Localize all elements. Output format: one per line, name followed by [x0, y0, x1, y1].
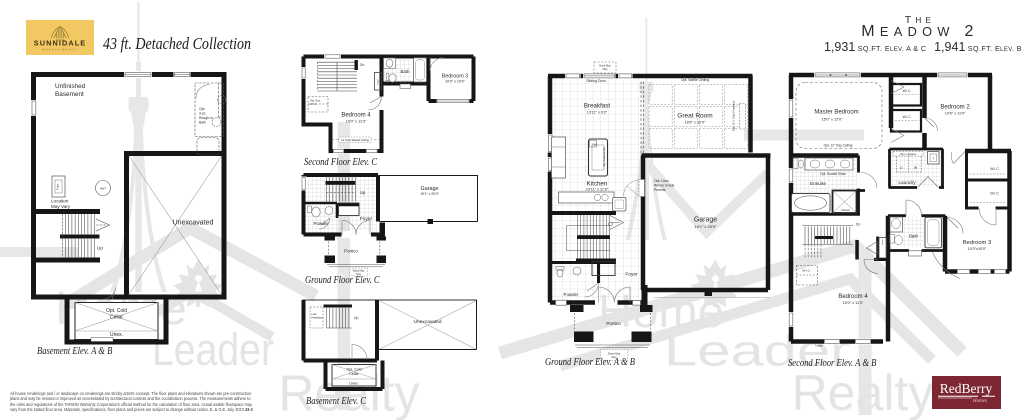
svg-text:Steps May: Steps May: [608, 352, 621, 356]
svg-text:Realty: Realty: [792, 365, 934, 420]
svg-text:Permits: Permits: [654, 188, 666, 192]
svg-text:Opt. Double Sinks: Opt. Double Sinks: [820, 172, 846, 176]
svg-text:Linen: Linen: [378, 78, 380, 84]
svg-text:RedBerry: RedBerry: [940, 381, 993, 396]
svg-text:Laundry: Laundry: [898, 180, 916, 186]
svg-text:Unexcavated: Unexcavated: [414, 319, 442, 325]
svg-text:Opt. O.V. Gas Fireplace: Opt. O.V. Gas Fireplace: [732, 100, 736, 131]
svg-text:Shower: Shower: [841, 208, 850, 212]
svg-text:Opt. Breakfast Bar: Opt. Breakfast Bar: [603, 147, 606, 167]
svg-text:SUNNIDALE: SUNNIDALE: [34, 39, 86, 48]
svg-text:Breakfast: Breakfast: [584, 103, 610, 110]
svg-text:13'11" x 11'6": 13'11" x 11'6": [586, 188, 609, 192]
svg-text:Powder: Powder: [314, 221, 329, 226]
svg-text:Ensuite: Ensuite: [810, 181, 826, 187]
svg-text:W.I.C.: W.I.C.: [990, 167, 999, 171]
svg-text:Dn: Dn: [360, 63, 364, 67]
svg-text:Up: Up: [360, 190, 366, 195]
svg-text:T: T: [932, 157, 934, 161]
svg-text:Opt. Cold: Opt. Cold: [106, 308, 127, 314]
svg-text:Deck May: Deck May: [599, 64, 611, 68]
svg-text:Unexcavated: Unexcavated: [173, 220, 214, 227]
svg-text:W.I.C.: W.I.C.: [903, 89, 912, 93]
svg-text:Headroom: Headroom: [312, 315, 324, 319]
svg-text:Bath: Bath: [401, 69, 411, 74]
svg-text:13'11" x 9'2": 13'11" x 9'2": [587, 111, 608, 115]
svg-text:Bath: Bath: [909, 234, 919, 239]
svg-text:Great Room: Great Room: [677, 113, 712, 120]
svg-text:Opt. Uppers: Opt. Uppers: [900, 152, 917, 156]
svg-text:Unex.: Unex.: [110, 332, 123, 338]
svg-text:HWT: HWT: [100, 187, 106, 191]
svg-text:Bedroom 4: Bedroom 4: [838, 294, 868, 300]
svg-text:Bath: Bath: [199, 121, 206, 125]
svg-text:Furn.: Furn.: [56, 183, 60, 190]
svg-text:Homes: Homes: [972, 399, 987, 404]
svg-text:Bedroom 4: Bedroom 4: [341, 113, 371, 119]
svg-text:10'6" x 11'0": 10'6" x 11'0": [945, 112, 966, 116]
svg-text:Master Bedroom: Master Bedroom: [814, 110, 858, 116]
svg-text:WASAGA BEACH: WASAGA BEACH: [42, 48, 77, 52]
svg-text:Portico: Portico: [344, 249, 358, 254]
svg-text:Powder: Powder: [564, 292, 579, 297]
svg-text:Dn: Dn: [856, 223, 860, 227]
svg-text:Cellar: Cellar: [110, 315, 123, 321]
svg-text:14' High Raised Ceiling: 14' High Raised Ceiling: [341, 138, 369, 142]
svg-text:10'0"x10'0": 10'0"x10'0": [968, 247, 987, 251]
svg-text:Leader: Leader: [152, 324, 274, 375]
svg-text:Kitchen: Kitchen: [587, 181, 608, 188]
svg-text:Opt. 12' Tray Ceiling: Opt. 12' Tray Ceiling: [824, 143, 853, 147]
svg-text:Up: Up: [97, 246, 103, 251]
svg-text:10'0" x 11'3": 10'0" x 11'3": [843, 301, 864, 305]
svg-text:W.I.C.: W.I.C.: [802, 269, 810, 273]
svg-text:19'1" x 20'0": 19'1" x 20'0": [420, 192, 439, 196]
svg-text:Rough-in: Rough-in: [199, 116, 213, 120]
svg-text:W.I.C.: W.I.C.: [990, 192, 999, 196]
svg-text:Sliding Door: Sliding Door: [586, 79, 606, 83]
svg-text:10'0" x 11'3": 10'0" x 11'3": [346, 120, 367, 124]
svg-text:May Vary: May Vary: [51, 204, 71, 209]
svg-text:Ledge: Ledge: [815, 344, 823, 348]
svg-text:Portico: Portico: [606, 321, 621, 326]
svg-text:19'1" x 20'0": 19'1" x 20'0": [695, 224, 718, 229]
svg-text:15'0" x 12'0": 15'0" x 12'0": [822, 118, 843, 122]
svg-text:Unex.: Unex.: [349, 382, 358, 386]
svg-text:Vary: Vary: [602, 67, 608, 71]
svg-text:Opt. Door: Opt. Door: [654, 179, 670, 183]
svg-text:Opt. Waffle Ceiling: Opt. Waffle Ceiling: [681, 78, 709, 82]
svg-text:Cellar: Cellar: [349, 372, 359, 376]
svg-text:Bedroom 3: Bedroom 3: [963, 240, 991, 246]
svg-text:Opt.: Opt.: [199, 107, 205, 111]
svg-text:16'5" x 12'0": 16'5" x 12'0": [685, 121, 706, 125]
svg-text:Unfinished: Unfinished: [55, 83, 86, 90]
svg-text:Opt. Cold: Opt. Cold: [346, 368, 361, 372]
svg-text:3-pc.: 3-pc.: [199, 112, 207, 116]
svg-text:Bedroom 2: Bedroom 2: [940, 105, 970, 111]
svg-text:Location: Location: [51, 199, 69, 204]
svg-text:W.I.C.: W.I.C.: [903, 115, 912, 119]
svg-text:Where Grade: Where Grade: [654, 184, 674, 188]
svg-text:Foyer: Foyer: [625, 272, 638, 278]
svg-text:Foyer: Foyer: [360, 216, 373, 222]
svg-text:Up: Up: [354, 316, 358, 320]
svg-text:Linen: Linen: [882, 239, 884, 245]
svg-text:Garage: Garage: [694, 217, 717, 224]
svg-text:10'0" x 10'0": 10'0" x 10'0": [445, 80, 465, 84]
svg-text:Basement: Basement: [55, 91, 84, 98]
svg-text:W: W: [914, 166, 917, 170]
svg-text:W.I.C.: W.I.C.: [310, 102, 317, 106]
